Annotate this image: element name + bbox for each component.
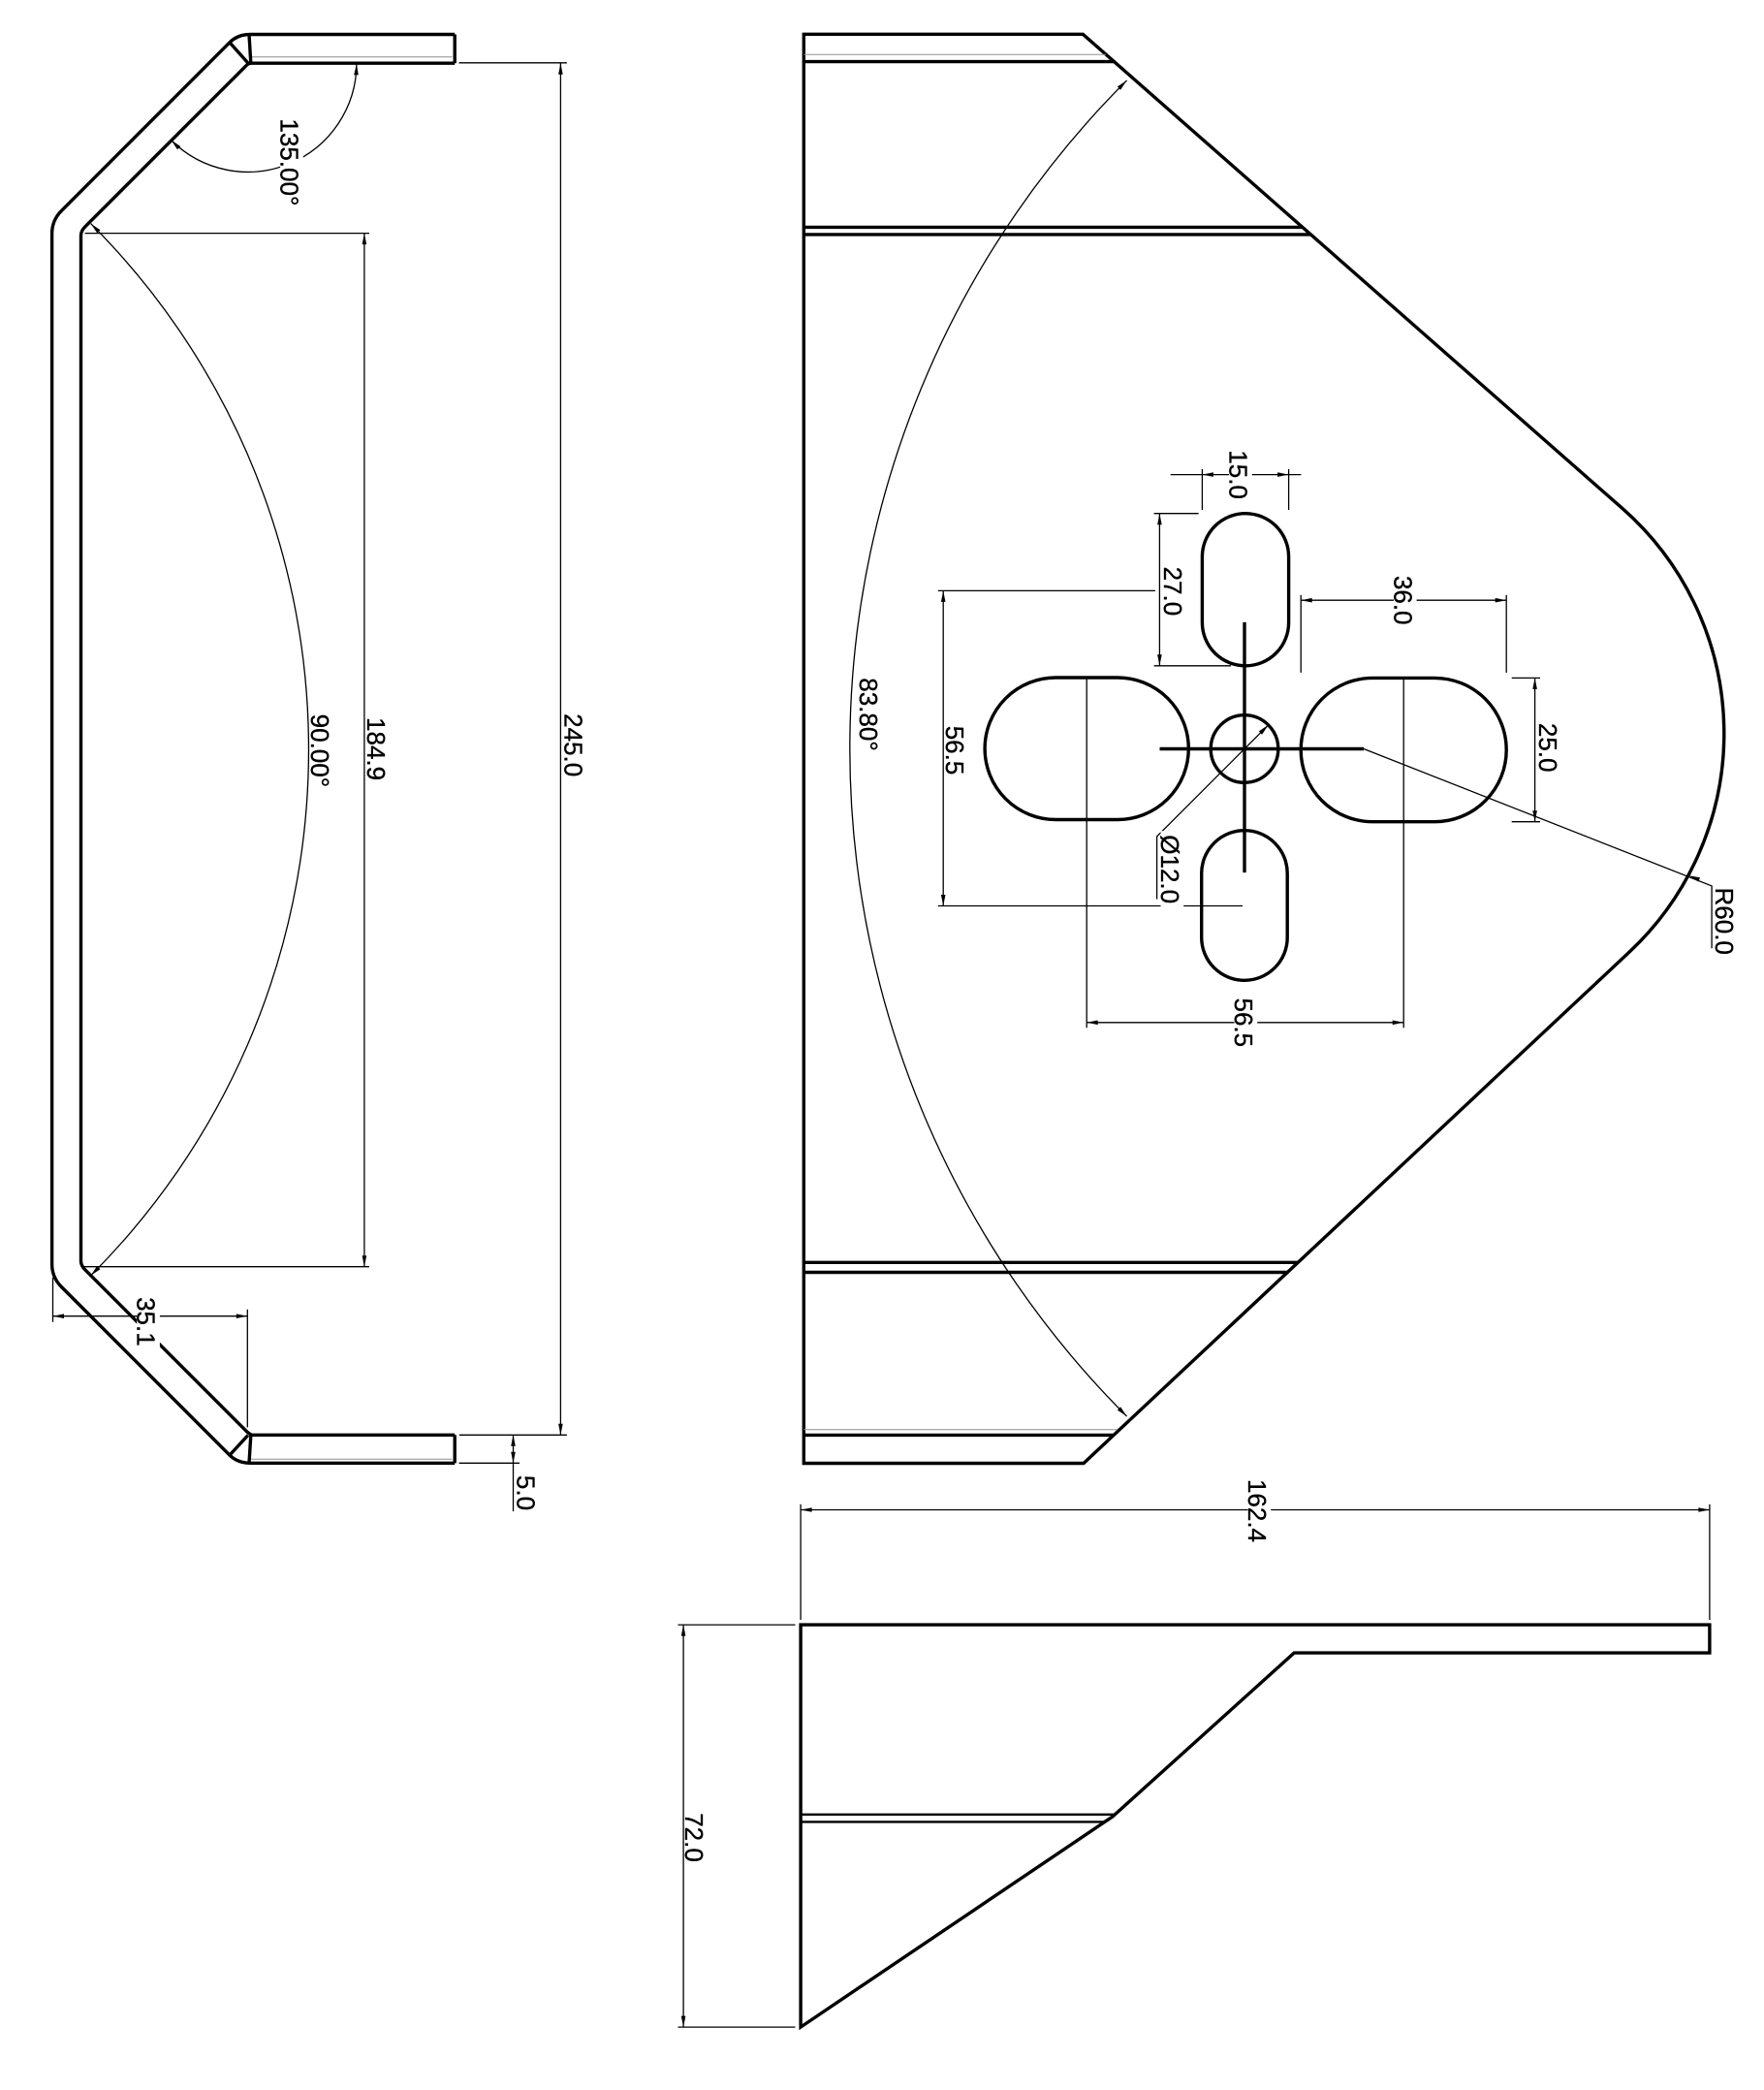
svg-text:27.0: 27.0 [1158,567,1187,617]
svg-text:5.0: 5.0 [512,1475,541,1510]
svg-text:36.0: 36.0 [1388,576,1417,625]
svg-text:Ø12.0: Ø12.0 [1155,835,1184,903]
svg-text:184.9: 184.9 [362,717,391,780]
svg-text:83.80°: 83.80° [854,678,883,750]
svg-text:25.0: 25.0 [1533,723,1562,773]
svg-text:15.0: 15.0 [1224,450,1253,499]
svg-text:245.0: 245.0 [559,713,588,776]
svg-text:56.5: 56.5 [1229,997,1258,1047]
svg-text:72.0: 72.0 [679,1813,709,1862]
svg-text:135.00°: 135.00° [275,118,304,206]
svg-text:90.00°: 90.00° [305,714,334,787]
svg-text:R60.0: R60.0 [1710,888,1739,955]
svg-text:162.4: 162.4 [1243,1479,1272,1542]
svg-text:56.5: 56.5 [940,726,969,776]
svg-text:35.1: 35.1 [132,1297,161,1346]
